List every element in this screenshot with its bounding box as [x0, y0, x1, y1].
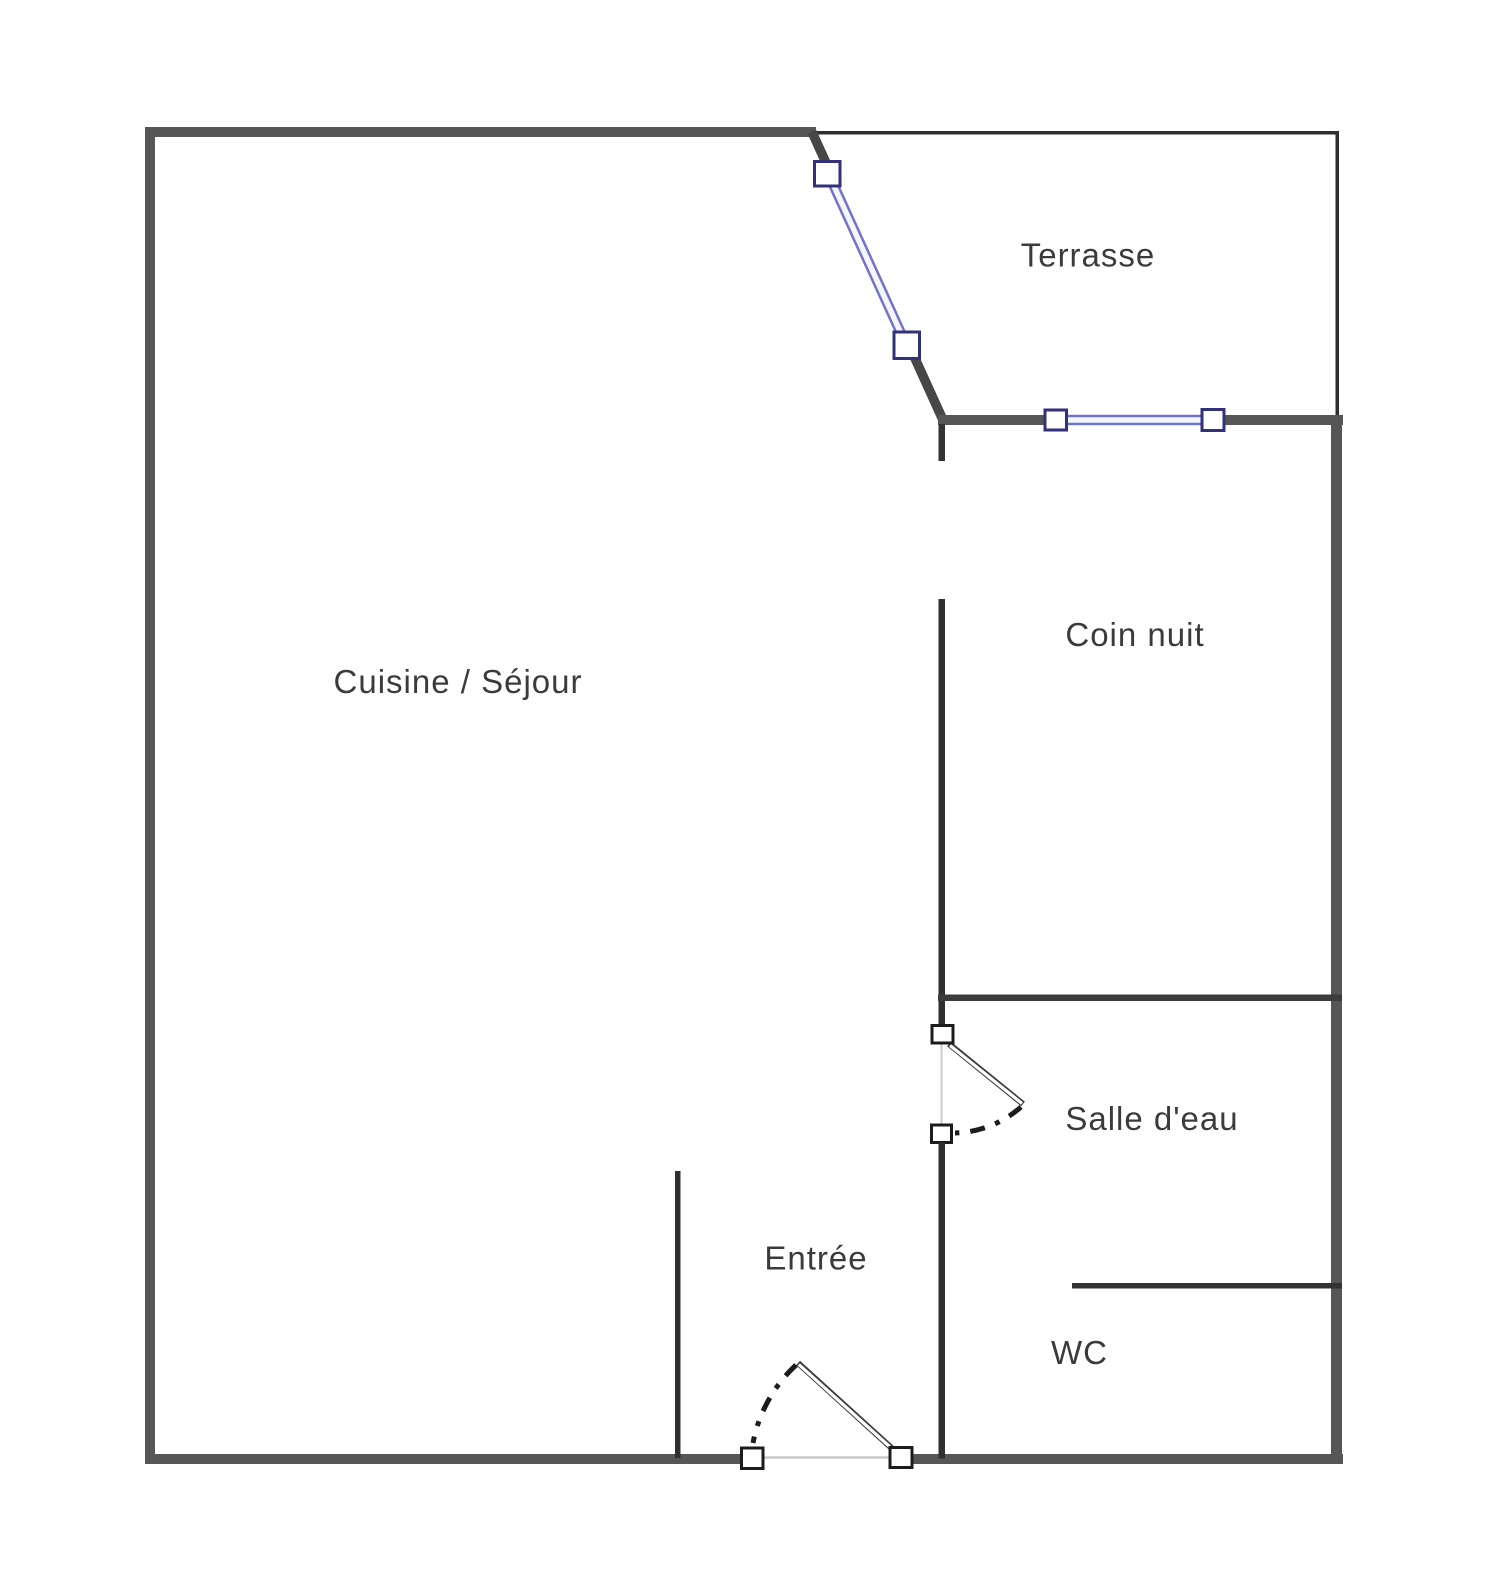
svg-text:Coin nuit: Coin nuit	[1065, 616, 1204, 653]
svg-text:Terrasse: Terrasse	[1021, 237, 1156, 274]
svg-text:Entrée: Entrée	[764, 1240, 867, 1277]
svg-text:Salle d'eau: Salle d'eau	[1065, 1100, 1238, 1137]
svg-text:WC: WC	[1051, 1334, 1108, 1371]
svg-text:Cuisine / Séjour: Cuisine / Séjour	[334, 663, 583, 700]
